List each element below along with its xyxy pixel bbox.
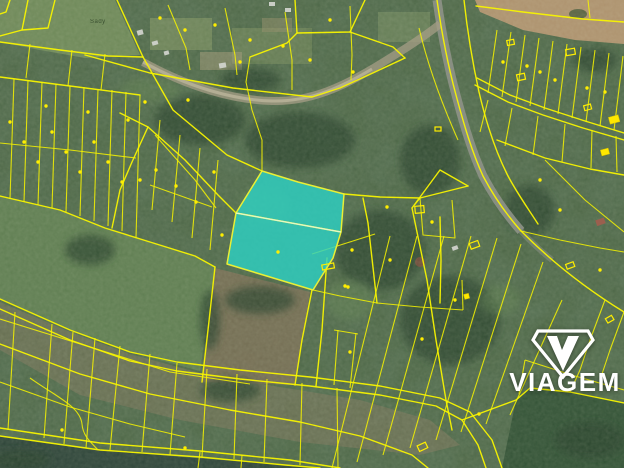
area-label: Sady [90,19,106,25]
cadastral-map[interactable]: Sady VIAGEM [0,0,624,468]
viagem-wordmark: VIAGEM [509,367,621,397]
map-viewport[interactable]: Sady VIAGEM [0,0,624,468]
